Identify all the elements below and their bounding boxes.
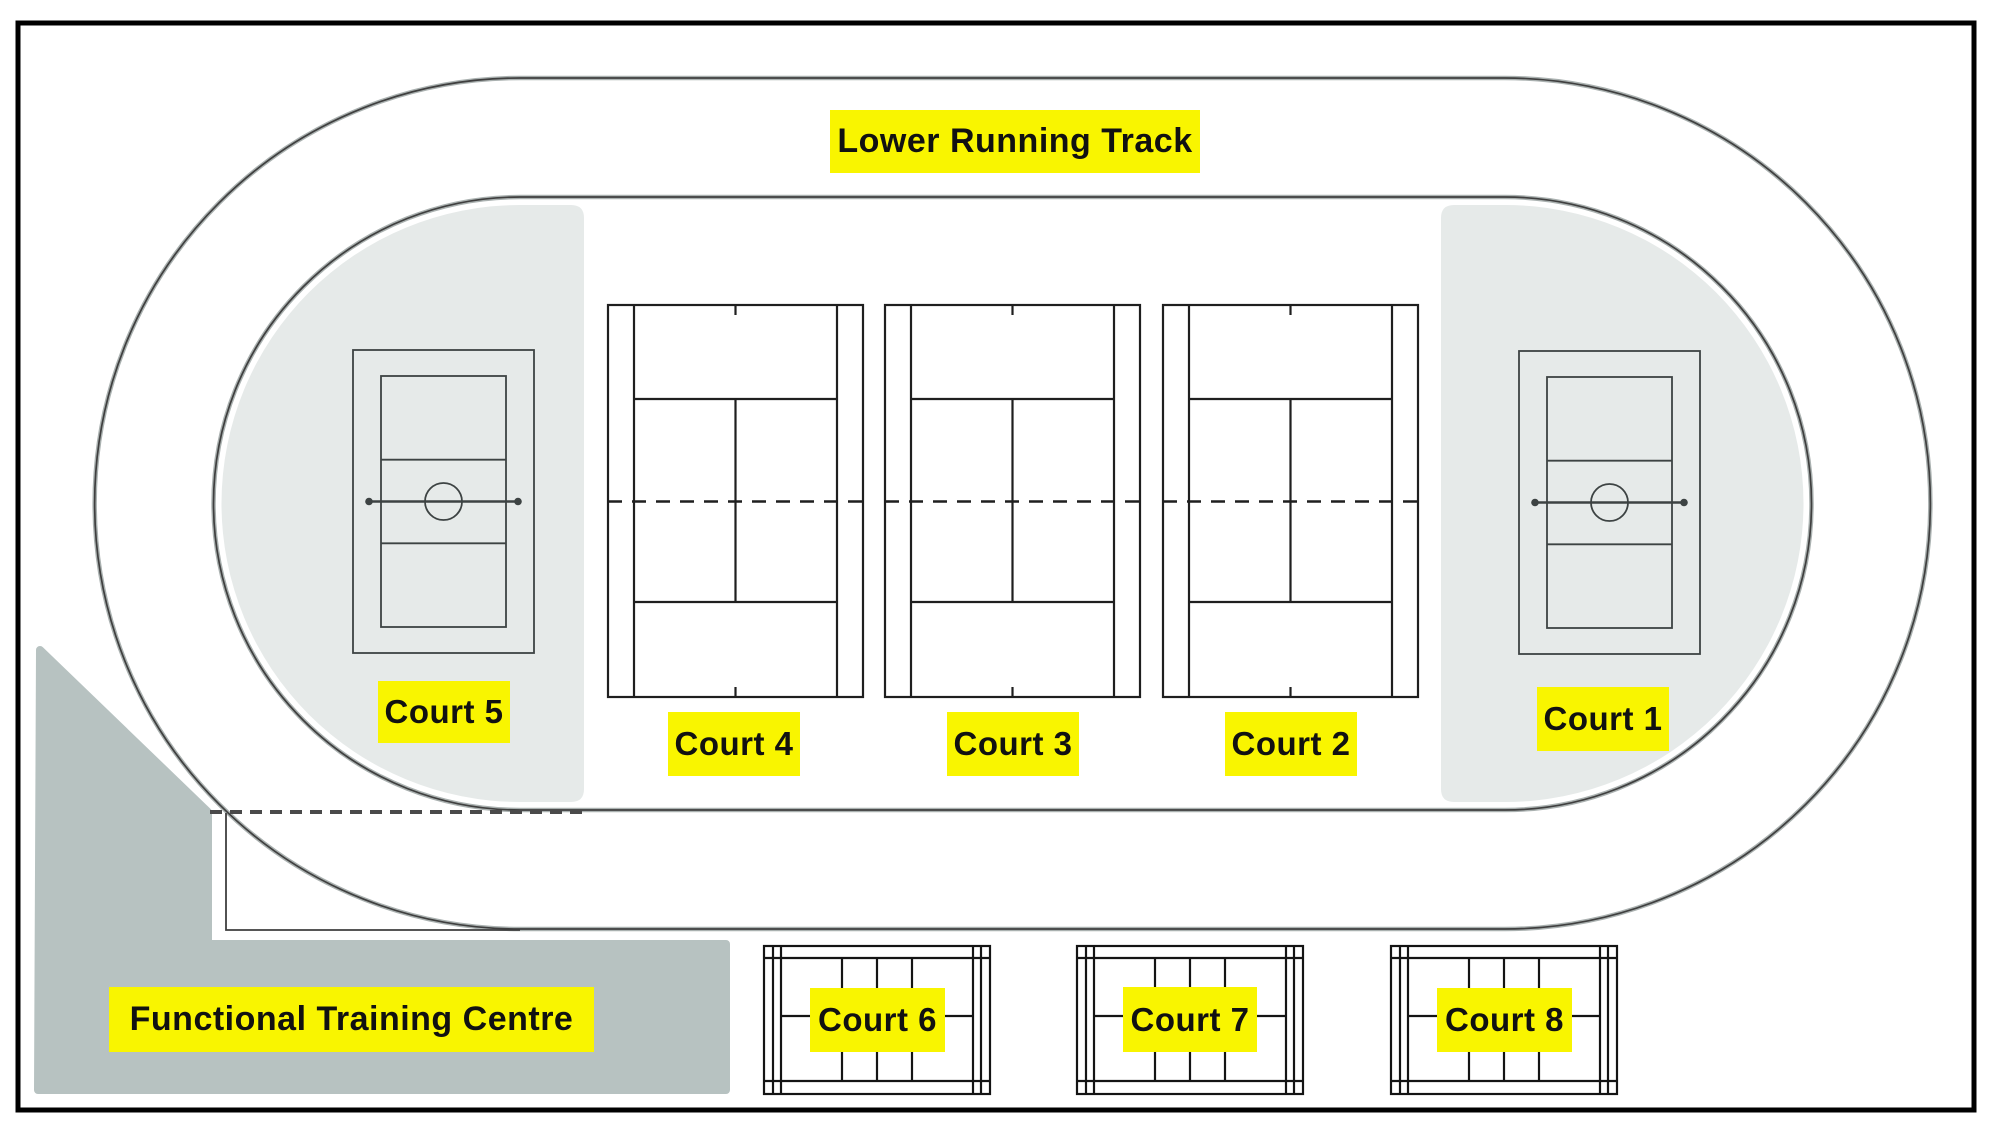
facility-map-page: { "colors": { "label_background": "#F9F5…: [0, 0, 2000, 1133]
court-5-net-post-left: [365, 498, 373, 506]
court-4-label: Court 4: [668, 712, 800, 776]
court-1-net-post-left: [1531, 499, 1539, 507]
court-2-label: Court 2: [1225, 712, 1357, 776]
functional-training-centre-label: Functional Training Centre: [109, 987, 594, 1052]
court-5-label: Court 5: [378, 681, 510, 743]
court-7-label: Court 7: [1123, 987, 1257, 1052]
court-8-label: Court 8: [1437, 988, 1572, 1052]
court-1-net-post-right: [1680, 499, 1688, 507]
court-3-label: Court 3: [947, 712, 1079, 776]
lower-running-track-label: Lower Running Track: [830, 110, 1200, 173]
court-6-label: Court 6: [810, 988, 945, 1052]
court-1-label: Court 1: [1537, 687, 1669, 751]
court-5-net-post-right: [514, 498, 522, 506]
